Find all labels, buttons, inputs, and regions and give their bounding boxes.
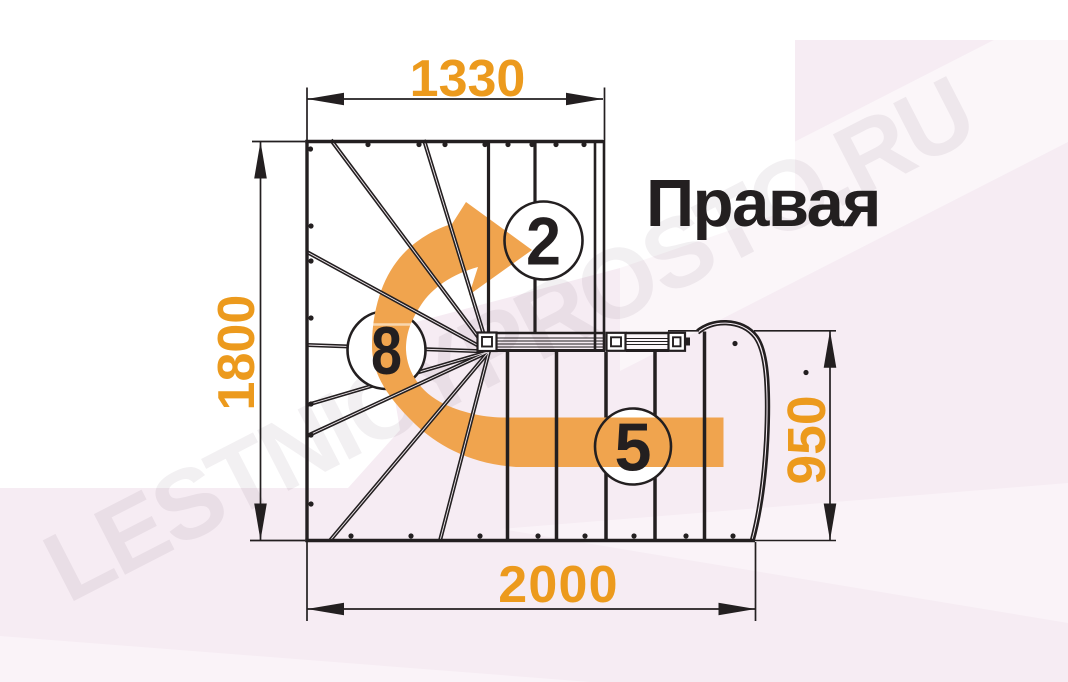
svg-text:2: 2 bbox=[526, 204, 561, 280]
svg-text:8: 8 bbox=[371, 313, 402, 389]
svg-text:Правая: Правая bbox=[646, 166, 880, 241]
svg-text:2000: 2000 bbox=[498, 556, 618, 614]
svg-text:950: 950 bbox=[778, 395, 837, 484]
svg-text:5: 5 bbox=[615, 410, 652, 486]
svg-text:1800: 1800 bbox=[208, 295, 266, 411]
svg-text:1330: 1330 bbox=[410, 50, 526, 108]
